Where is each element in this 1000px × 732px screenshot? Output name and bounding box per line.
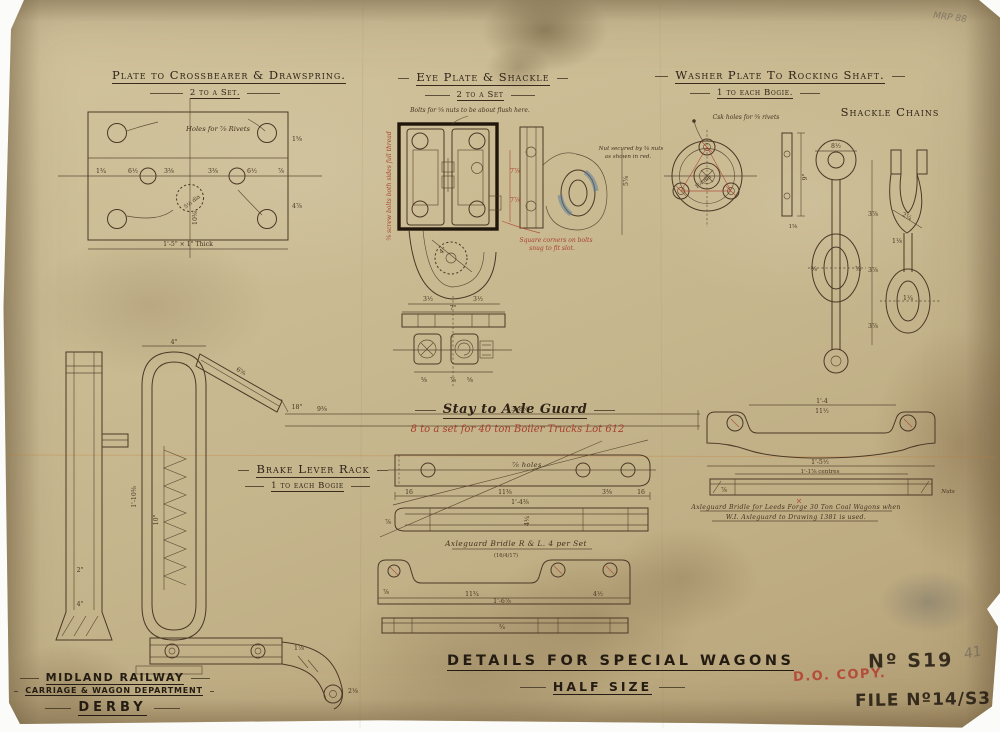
brake-title-text: Brake Lever Rack [256, 462, 369, 478]
bridle-right-dim: Nuts [940, 489, 955, 495]
eye-right-note-2: as shown in red. [605, 154, 652, 160]
chain-dim: 3⅞ [868, 211, 878, 218]
washer-note: Csk holes for ⅝ rivets [713, 114, 780, 121]
bridle-mid-dim: ⅞ [383, 589, 389, 596]
washer-dim: 9" [802, 173, 809, 180]
bridle-mid-dim: 4½ [593, 591, 603, 598]
washer-section-sub: 1 to each Bogie. [690, 88, 820, 99]
plate-dim: 10⅜ [192, 211, 199, 225]
washer-plate-drawing: Csk holes for ⅝ rivets 1¼ dia 9" 1⅝ [664, 114, 809, 230]
washer-dim: 1⅝ [789, 224, 798, 230]
shackle-chains-drawing: 8½ 3⅞ 3⅞ 3⅞ 2¼ ⅝ ⅞ 1¼ 1⅛ [808, 140, 940, 373]
topview-dim: ⅝ [467, 377, 473, 384]
bridle-mid-dim: 1'-6⅞ [493, 598, 511, 605]
chain-dim: 3⅞ [868, 267, 878, 274]
plate-dim: 1¾ [96, 168, 106, 175]
stay-dim: 16 [637, 489, 645, 496]
drawing-number: Nº S19 [868, 649, 954, 672]
bridle-right-note-1: Axleguard Bridle for Leeds Forge 30 Ton … [690, 504, 901, 511]
file-number: FILE Nº14/S3 [855, 689, 991, 711]
chain-dim: 1⅛ [892, 238, 902, 245]
plate-dim: 6½ [128, 168, 138, 175]
drawing-title: DETAILS FOR SPECIAL WAGONS [440, 653, 770, 671]
brake-dim: 4" [171, 339, 178, 346]
topview-dim: 3½ [473, 296, 483, 303]
eye-plate-top-view-drawing: 3½ 3½ 7" ⅝ ⅞ ⅝ [393, 296, 512, 388]
washer-dim: 1¼ dia [694, 173, 714, 191]
plate-section-title: Plate to Crossbearer & Drawspring. [105, 68, 330, 84]
bridle-right-dim: 1'-1⅞ centres [801, 469, 840, 475]
chains-title-text: Shackle Chains [841, 105, 940, 119]
plate-bottom-dim: 1'-5" × 1" Thick [163, 241, 213, 248]
brake-dim: 2⅛ [348, 688, 358, 695]
stay-sub-text: 8 to a set for 40 ton Boiler Trucks Lot … [411, 424, 625, 435]
stay-axle-guard-drawing: ⅞ holes 16 11⅜ 3⅜ 16 1'-4⅜ 4¼ ⅞ [380, 440, 656, 537]
brake-dim: 1'-10⅜ [131, 486, 138, 508]
axleguard-bridle-mid-drawing: Axleguard Bridle R & L. 4 per Set (16/4/… [378, 539, 630, 633]
company-name: MIDLAND RAILWAY [20, 671, 210, 685]
bridle-right-dim: 1'-4 [816, 398, 828, 405]
eye-section-title: Eye Plate & Shackle [398, 70, 568, 86]
stay-dim: 11⅜ [498, 489, 512, 496]
scale-label: HALF SIZE [520, 679, 685, 695]
brake-dim: 2" [77, 567, 84, 574]
bridle-mid-dim: ¾ [499, 624, 505, 631]
eye-title-text: Eye Plate & Shackle [416, 70, 549, 86]
plate-sub-text: 2 to a Set. [190, 88, 240, 99]
stay-dim: 3⅜ [602, 489, 612, 496]
topview-dim: 7" [450, 305, 457, 312]
bridle-mid-dim: 11¾ [465, 591, 479, 598]
bridle-right-dim: 11½ [815, 408, 829, 415]
bridle-right-note-2: W.I. Axleguard to Drawing 1381 is used. [726, 514, 866, 521]
stay-dim: 16 [405, 489, 413, 496]
plate-dim: 6½ [247, 168, 257, 175]
bridle-right-dim: 1'-5½ [811, 459, 829, 466]
eye-dim-red: 7⅞ [510, 168, 520, 175]
axleguard-bridle-right-drawing: 1'-4 11½ 1'-5½ 1'-1⅞ centres ⅞ Nuts Axle… [690, 398, 955, 521]
brake-dim: 10" [153, 514, 160, 525]
chain-dim: ⅝ [811, 266, 817, 273]
eye-sub-text: 2 to a Set [457, 90, 504, 101]
stay-title-text: Stay to Axle Guard [443, 402, 588, 419]
chain-dim: 2¼ [901, 211, 913, 222]
plate-holes-note: Holes for ⅞ Rivets [185, 125, 251, 133]
plate-title-text: Plate to Crossbearer & Drawspring. [112, 68, 346, 84]
eye-square-note-1: Square corners on bolts [519, 237, 592, 244]
file-number-text: FILE Nº14/S3 [855, 689, 991, 711]
washer-section-title: Washer Plate To Rocking Shaft. [655, 68, 905, 84]
brake-dim: 18" [292, 404, 303, 411]
brake-sub-text: 1 to each Bogie [271, 481, 344, 492]
stay-section-title: Stay to Axle Guard [415, 402, 615, 419]
eye-section-sub: 2 to a Set [425, 90, 535, 101]
stay-dim: ⅞ [385, 519, 391, 526]
brake-dim: 9⅜ [317, 406, 327, 413]
location-name: DERBY [45, 700, 180, 716]
stay-dim: 1'-4⅜ [511, 499, 529, 506]
scale-text: HALF SIZE [553, 679, 652, 695]
chains-section-title: Shackle Chains [825, 105, 955, 119]
brake-dim: 6⅝ [235, 366, 247, 377]
eye-dim: 5⅞ [623, 176, 630, 186]
plate-crossbearer-drawing: Holes for ⅞ Rivets 1¾ 6½ 3⅜ 3⅜ 6½ ⅞ 10⅜ … [58, 98, 322, 258]
stay-holes-note: ⅞ holes [512, 461, 542, 469]
drawing-title-text: DETAILS FOR SPECIAL WAGONS [447, 653, 794, 671]
eye-plate-shackle-drawing: Bolts for ⅝ nuts to be about flush here.… [386, 107, 664, 299]
drawing-number-text: Nº S19 [868, 649, 954, 672]
plate-dim: 3⅜ [164, 168, 174, 175]
stay-dim: 4¼ [524, 516, 531, 526]
chain-dim: ⅞ [855, 266, 861, 273]
department-text: CARRIAGE & WAGON DEPARTMENT [25, 686, 203, 696]
bridle-mid-label: Axleguard Bridle R & L. 4 per Set [444, 539, 587, 548]
eye-left-red-note: ⅝ screw bolts both sides full thread [386, 131, 393, 241]
brake-section-title: Brake Lever Rack [238, 462, 388, 478]
location-text: DERBY [78, 700, 146, 716]
eye-dim-red: 7⅞ [510, 197, 520, 204]
eye-square-note-2: snug to fit slot. [529, 245, 575, 252]
plate-dim: 1⅝ [292, 136, 302, 143]
bridle-right-dim: ⅞ [721, 487, 727, 494]
chain-dim: 3⅞ [868, 323, 878, 330]
chain-dim: 8½ [831, 143, 841, 150]
plate-dim: 3⅜ [208, 168, 218, 175]
topview-dim: ⅞ [450, 377, 456, 384]
bridle-mid-date: (16/4/17) [494, 552, 518, 559]
washer-sub-text: 1 to each Bogie. [717, 88, 793, 99]
brake-dim: 1⅞ [294, 645, 304, 652]
eye-right-note-1: Nut secured by ⅝ nuts [598, 146, 664, 152]
topview-dim: ⅝ [421, 377, 427, 384]
plate-section-sub: 2 to a Set. [150, 88, 280, 99]
plate-dim: ⅞ [278, 168, 284, 175]
brake-section-sub: 1 to each Bogie [245, 481, 370, 492]
topview-dim: 3½ [423, 296, 433, 303]
brake-dim: 4" [77, 601, 84, 608]
department-name: CARRIAGE & WAGON DEPARTMENT [14, 686, 214, 696]
washer-title-text: Washer Plate To Rocking Shaft. [675, 68, 884, 84]
chain-dim: 1¼ [903, 295, 913, 302]
stay-section-sub-red: 8 to a set for 40 ton Boiler Trucks Lot … [390, 424, 645, 435]
company-text: MIDLAND RAILWAY [46, 671, 185, 685]
eye-top-note: Bolts for ⅝ nuts to be about flush here. [409, 107, 530, 114]
drawing-sheet-photo: Holes for ⅞ Rivets 1¾ 6½ 3⅜ 3⅜ 6½ ⅞ 10⅜ … [0, 0, 1000, 732]
plate-dim: 4⅞ [292, 203, 302, 210]
